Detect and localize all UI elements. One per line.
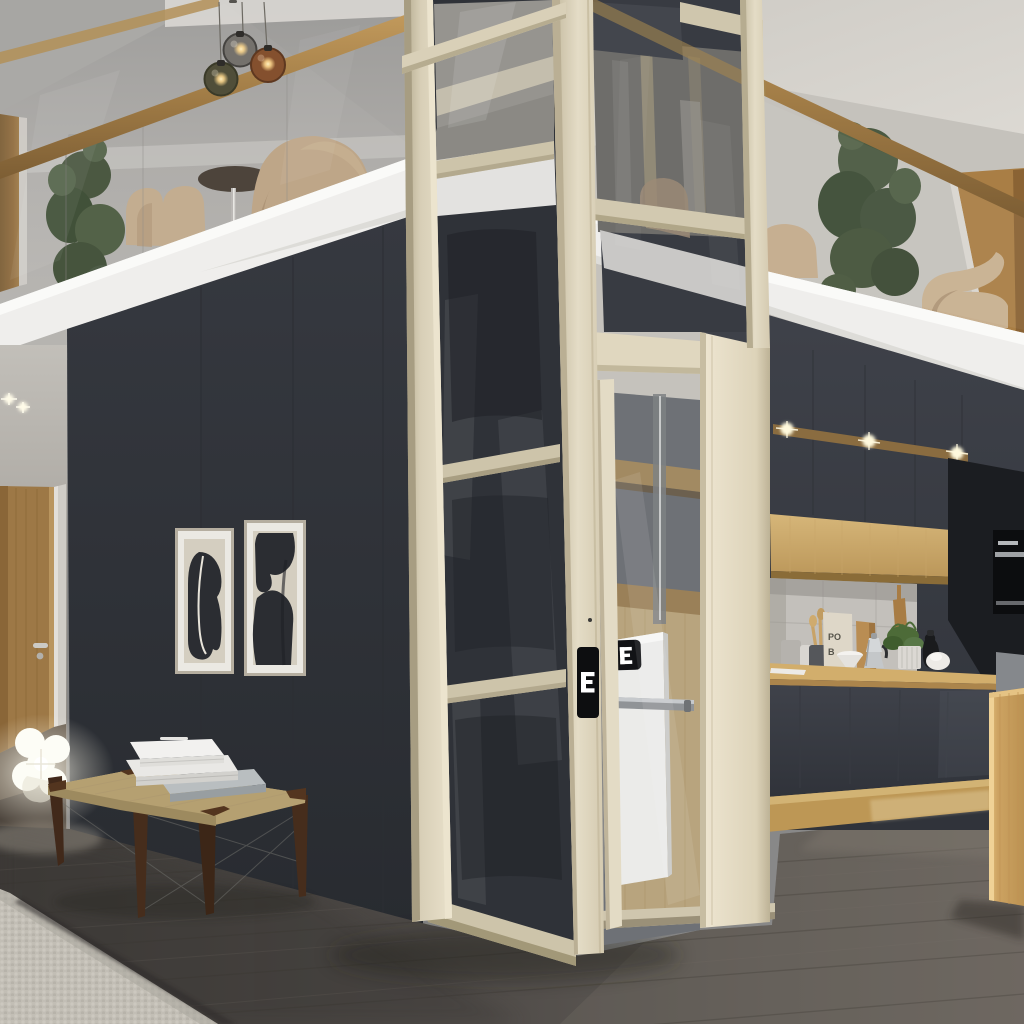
svg-text:PO: PO	[828, 632, 841, 642]
svg-text:B: B	[828, 647, 835, 657]
